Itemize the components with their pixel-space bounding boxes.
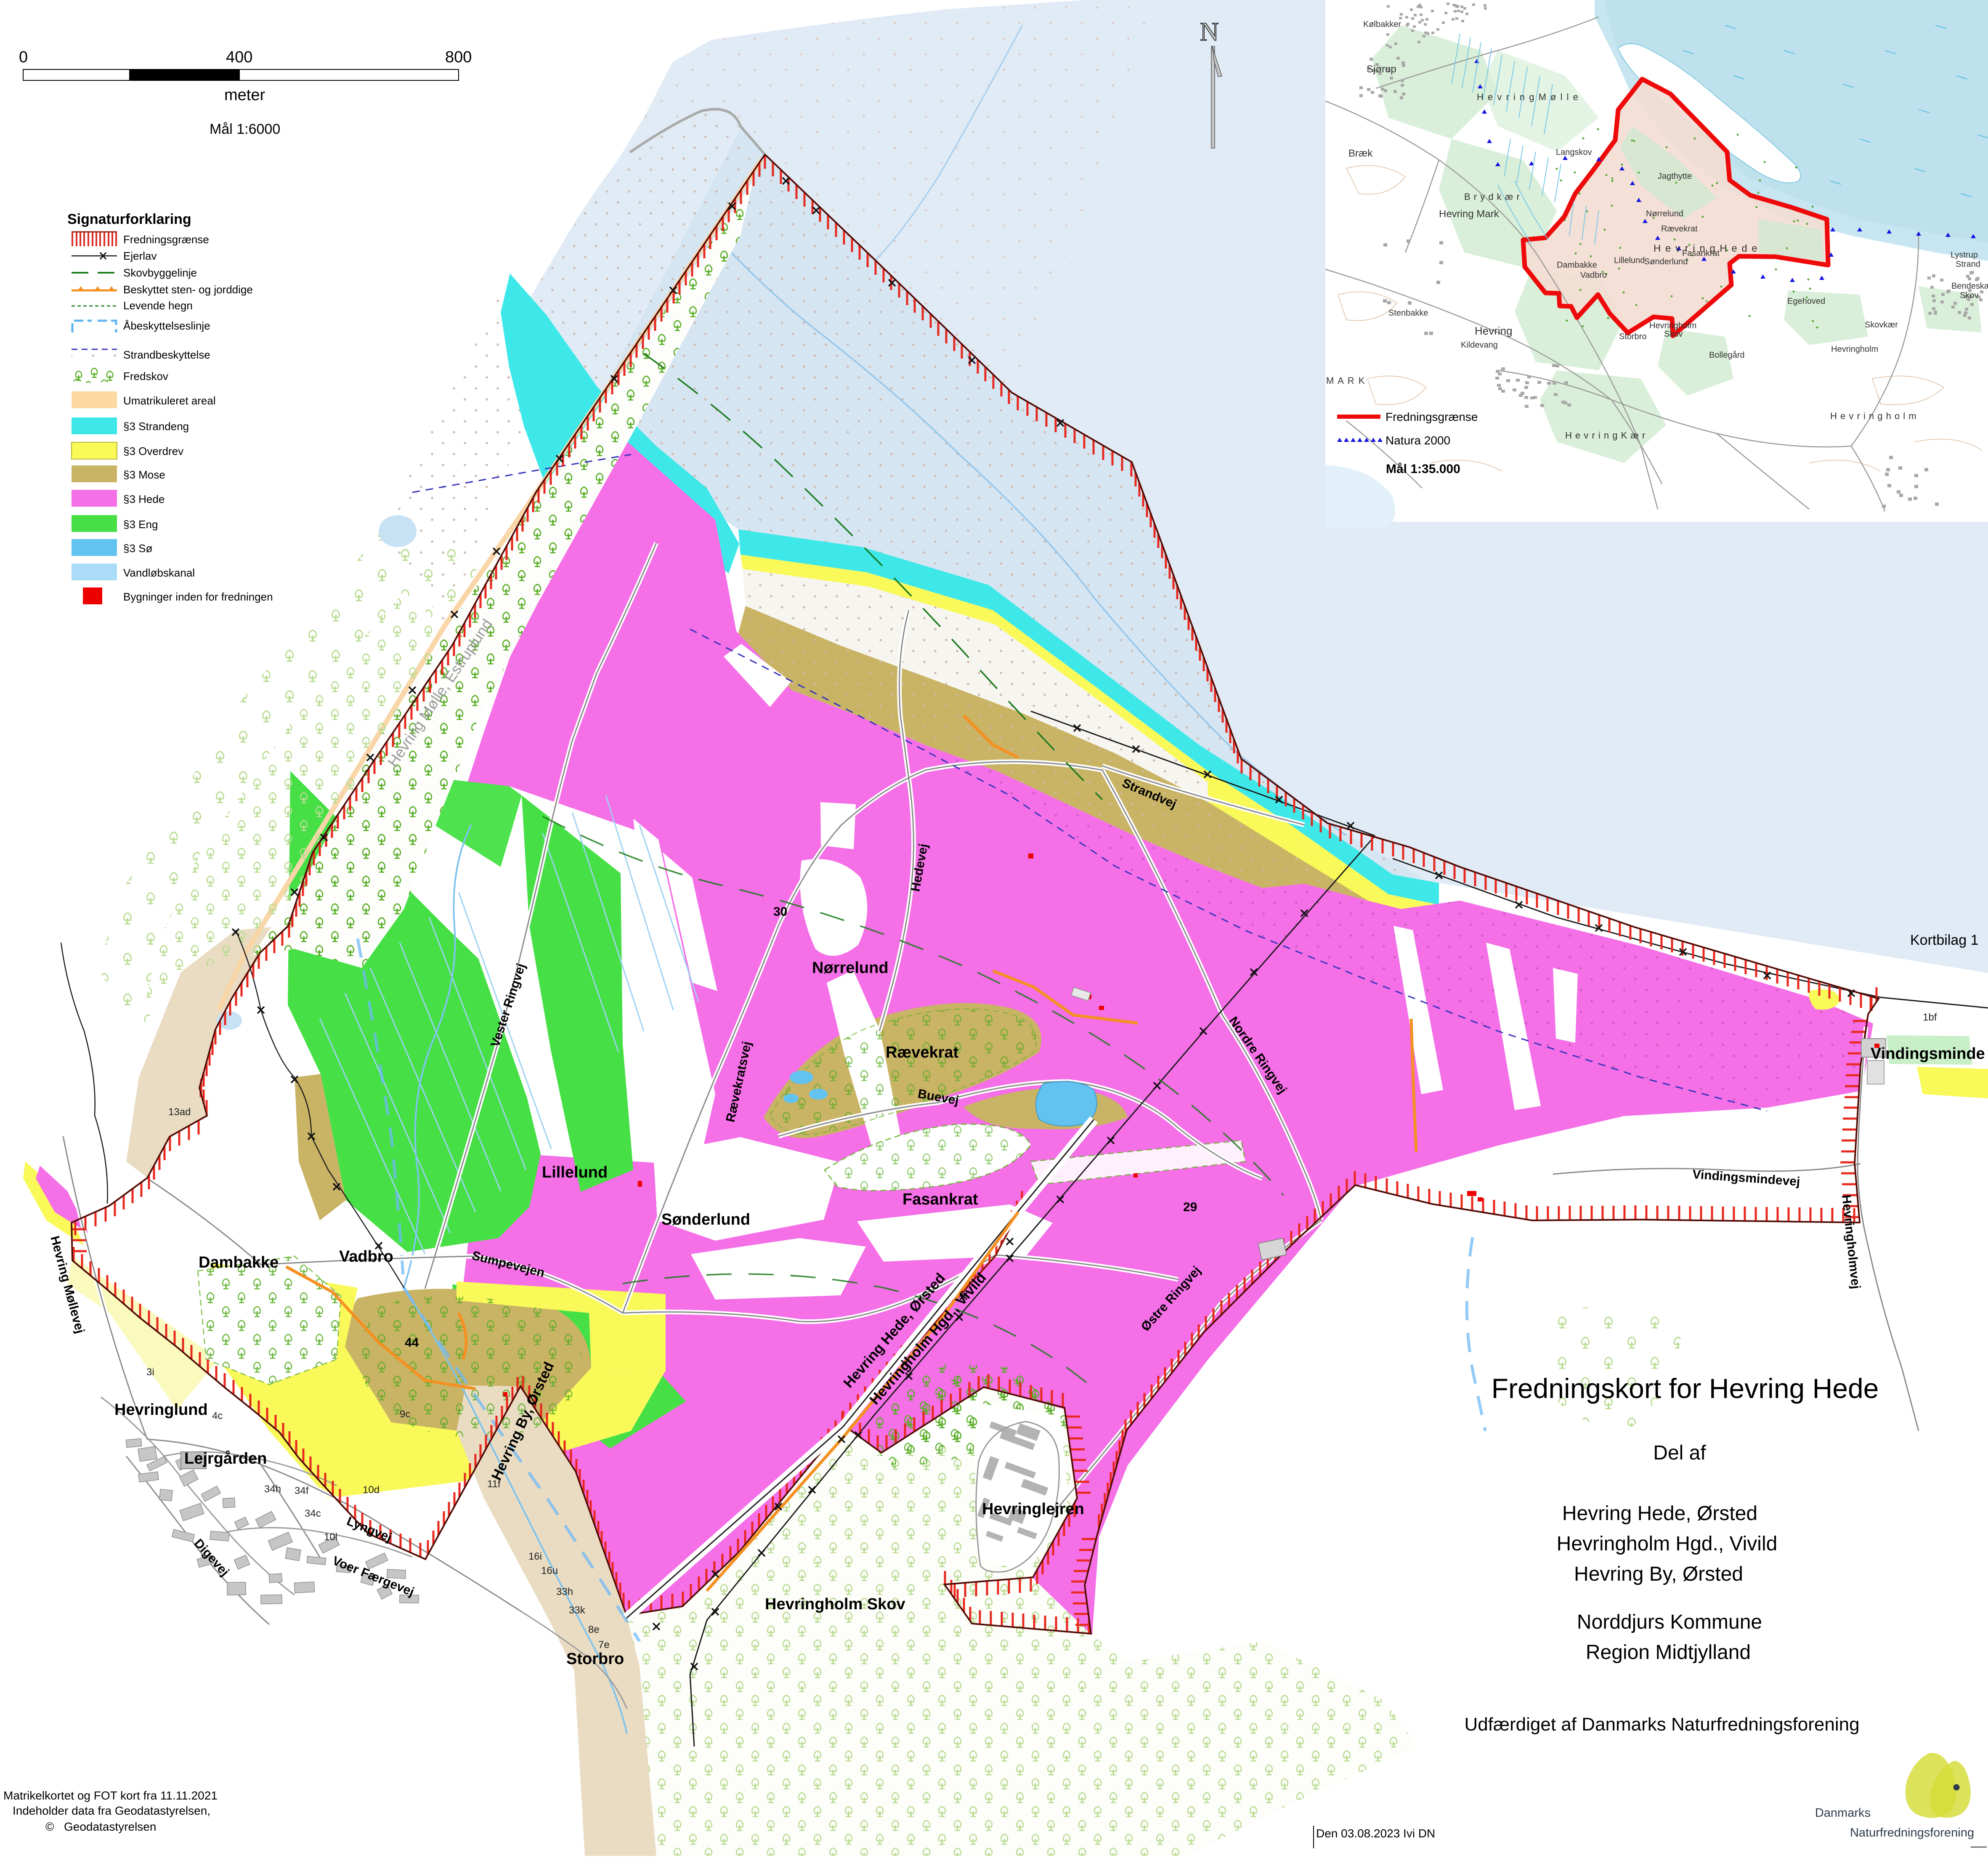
svg-text:Matrikelkortet og FOT kort fra: Matrikelkortet og FOT kort fra 11.11.202… xyxy=(3,1789,218,1802)
svg-text:Lystrup: Lystrup xyxy=(1951,250,1978,260)
svg-text:Kildevang: Kildevang xyxy=(1461,340,1498,350)
svg-text:§3 Hede: §3 Hede xyxy=(123,493,165,505)
svg-text:Rævekrat: Rævekrat xyxy=(886,1044,959,1061)
svg-text:§3 Overdrev: §3 Overdrev xyxy=(123,445,183,457)
svg-text:Hevringholm: Hevringholm xyxy=(1649,321,1696,330)
svg-text:10l: 10l xyxy=(324,1531,337,1543)
svg-text:Mål 1:35.000: Mål 1:35.000 xyxy=(1386,462,1460,476)
svg-text:Skovkær: Skovkær xyxy=(1865,320,1898,330)
svg-text:8e: 8e xyxy=(588,1624,600,1635)
svg-text:34h: 34h xyxy=(264,1483,281,1495)
svg-text:Vadbro: Vadbro xyxy=(339,1248,393,1265)
svg-text:Bendeskær: Bendeskær xyxy=(1951,282,1988,291)
svg-text:0: 0 xyxy=(19,48,28,66)
svg-text:Natura 2000: Natura 2000 xyxy=(1385,434,1450,447)
svg-text:Storbro: Storbro xyxy=(1619,332,1647,341)
svg-text:Skovbyggelinje: Skovbyggelinje xyxy=(123,266,197,279)
svg-text:Norddjurs Kommune: Norddjurs Kommune xyxy=(1577,1611,1762,1633)
svg-text:9c: 9c xyxy=(400,1409,410,1420)
svg-text:Strand: Strand xyxy=(1956,260,1980,269)
svg-text:Den 03.08.2023 Ivi DN: Den 03.08.2023 Ivi DN xyxy=(1316,1827,1435,1840)
svg-text:Sjørup: Sjørup xyxy=(1367,64,1396,75)
svg-text:§3 Sø: §3 Sø xyxy=(123,542,152,555)
svg-text:M A R K: M A R K xyxy=(1326,375,1365,386)
svg-text:Sønderlund: Sønderlund xyxy=(1644,257,1688,266)
svg-text:meter: meter xyxy=(224,86,265,104)
svg-text:Mål 1:6000: Mål 1:6000 xyxy=(210,121,280,137)
svg-text:© Geodatastyrelsen: © Geodatastyrelsen xyxy=(45,1820,156,1833)
svg-text:Stenbakke: Stenbakke xyxy=(1388,308,1428,318)
svg-text:10d: 10d xyxy=(363,1484,380,1496)
svg-text:Vandløbskanal: Vandløbskanal xyxy=(123,566,195,579)
svg-text:Nørrelund: Nørrelund xyxy=(1646,209,1683,218)
svg-text:H e v r i n g h o l m: H e v r i n g h o l m xyxy=(1830,411,1917,421)
svg-text:Hevring Mark: Hevring Mark xyxy=(1439,208,1500,220)
svg-text:Beskyttet sten- og jorddige: Beskyttet sten- og jorddige xyxy=(123,283,253,296)
svg-text:Hevring: Hevring xyxy=(1475,324,1513,337)
svg-text:30: 30 xyxy=(773,905,787,919)
svg-text:Del af: Del af xyxy=(1653,1442,1706,1464)
svg-text:Strandbeskyttelse: Strandbeskyttelse xyxy=(123,348,210,361)
svg-text:Hevringlund: Hevringlund xyxy=(114,1401,208,1419)
svg-text:Dambakke: Dambakke xyxy=(199,1254,279,1271)
svg-text:Åbeskyttelseslinje: Åbeskyttelseslinje xyxy=(123,319,210,332)
svg-text:Danmarks: Danmarks xyxy=(1815,1806,1871,1820)
svg-text:Region Midtjylland: Region Midtjylland xyxy=(1586,1641,1751,1664)
svg-text:Hevring Hede, Ørsted: Hevring Hede, Ørsted xyxy=(1562,1502,1757,1525)
svg-text:16u: 16u xyxy=(541,1565,558,1576)
svg-text:Skov: Skov xyxy=(1960,291,1978,300)
svg-text:Vadbro: Vadbro xyxy=(1580,271,1607,280)
svg-text:Kølbakker: Kølbakker xyxy=(1363,20,1401,29)
svg-text:Ejerlav: Ejerlav xyxy=(123,250,157,262)
svg-text:§3 Strandeng: §3 Strandeng xyxy=(123,420,189,433)
svg-text:Fasankrat: Fasankrat xyxy=(902,1191,978,1208)
svg-text:13ad: 13ad xyxy=(168,1106,191,1118)
svg-text:Langskov: Langskov xyxy=(1556,148,1592,157)
svg-text:Kortbilag 1: Kortbilag 1 xyxy=(1910,932,1979,948)
svg-text:Skov: Skov xyxy=(1664,330,1683,339)
svg-text:Bygninger inden for fredningen: Bygninger inden for fredningen xyxy=(123,590,273,603)
svg-text:§3 Eng: §3 Eng xyxy=(123,518,158,531)
svg-text:Fredningsgrænse: Fredningsgrænse xyxy=(123,233,209,246)
svg-text:Jagthytte: Jagthytte xyxy=(1658,172,1692,181)
svg-text:H e v r i n g M ø l l e: H e v r i n g M ø l l e xyxy=(1477,92,1579,102)
svg-text:1bf: 1bf xyxy=(1923,1012,1937,1023)
svg-text:Fredningskort for Hevring Hede: Fredningskort for Hevring Hede xyxy=(1492,1373,1879,1404)
svg-text:Naturfredningsforening: Naturfredningsforening xyxy=(1850,1826,1974,1839)
svg-text:16i: 16i xyxy=(528,1551,542,1562)
svg-text:Levende hegn: Levende hegn xyxy=(123,299,193,312)
svg-text:Rævekrat: Rævekrat xyxy=(1661,224,1698,234)
svg-text:Vindingsminde: Vindingsminde xyxy=(1871,1045,1985,1063)
svg-text:33k: 33k xyxy=(569,1605,586,1616)
svg-text:Fredskov: Fredskov xyxy=(123,370,168,383)
svg-text:B r y d k æ r: B r y d k æ r xyxy=(1464,191,1520,202)
svg-text:Udfærdiget af Danmarks Naturfr: Udfærdiget af Danmarks Naturfredningsfor… xyxy=(1464,1714,1859,1735)
svg-text:Lillelund: Lillelund xyxy=(542,1164,608,1181)
svg-text:Hevring By, Ørsted: Hevring By, Ørsted xyxy=(1574,1563,1743,1585)
svg-text:29: 29 xyxy=(1183,1200,1197,1214)
svg-text:Bollegård: Bollegård xyxy=(1709,351,1745,360)
svg-text:34c: 34c xyxy=(305,1508,321,1519)
svg-text:3i: 3i xyxy=(146,1366,154,1378)
svg-text:Dambakke: Dambakke xyxy=(1557,260,1597,270)
svg-text:4c: 4c xyxy=(212,1410,223,1422)
svg-text:7e: 7e xyxy=(598,1639,610,1651)
svg-text:Hevringlejren: Hevringlejren xyxy=(982,1500,1084,1518)
svg-text:Fasankrat: Fasankrat xyxy=(1682,249,1720,258)
svg-text:Umatrikuleret areal: Umatrikuleret areal xyxy=(123,394,216,407)
svg-text:Indeholder data fra Geodatasty: Indeholder data fra Geodatastyrelsen, xyxy=(13,1804,210,1817)
svg-text:Hevringholm: Hevringholm xyxy=(1831,345,1878,354)
svg-text:H e v r i n g K æ r: H e v r i n g K æ r xyxy=(1565,430,1646,441)
svg-text:Sønderlund: Sønderlund xyxy=(661,1211,750,1228)
svg-text:Fredningsgrænse: Fredningsgrænse xyxy=(1385,410,1478,423)
svg-text:Nørrelund: Nørrelund xyxy=(812,959,889,977)
svg-text:N: N xyxy=(1200,18,1219,46)
svg-text:§3 Mose: §3 Mose xyxy=(123,468,165,481)
svg-text:44: 44 xyxy=(405,1336,419,1350)
svg-text:800: 800 xyxy=(445,48,472,66)
svg-text:Signaturforklaring: Signaturforklaring xyxy=(67,211,191,227)
svg-text:33h: 33h xyxy=(556,1586,573,1598)
svg-text:34f: 34f xyxy=(295,1485,309,1497)
svg-text:Hevringholm Hgd., Vivild: Hevringholm Hgd., Vivild xyxy=(1557,1533,1778,1555)
svg-text:Storbro: Storbro xyxy=(566,1650,624,1668)
svg-text:Hevringholm Skov: Hevringholm Skov xyxy=(765,1595,905,1613)
svg-text:Bræk: Bræk xyxy=(1348,148,1373,159)
svg-text:400: 400 xyxy=(226,48,252,66)
svg-text:Lillelund: Lillelund xyxy=(1614,256,1645,265)
svg-text:Egehoved: Egehoved xyxy=(1787,297,1825,306)
svg-text:Lejrgården: Lejrgården xyxy=(184,1450,267,1467)
